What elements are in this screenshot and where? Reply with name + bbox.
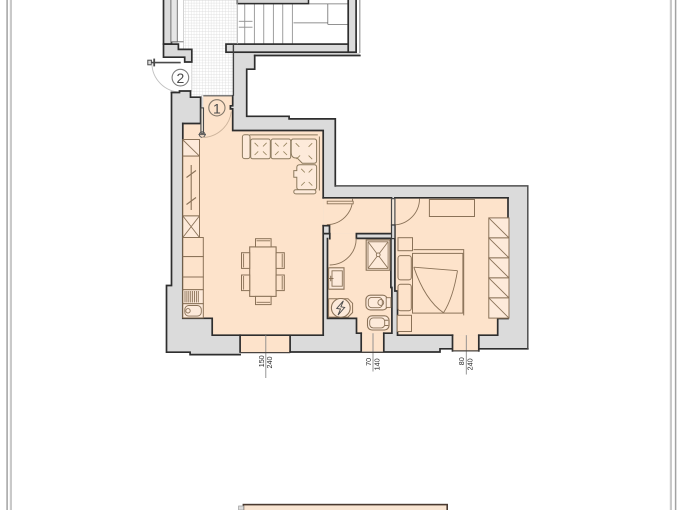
- svg-text:2: 2: [177, 70, 185, 86]
- svg-text:240: 240: [265, 357, 274, 369]
- svg-text:140: 140: [372, 358, 381, 370]
- svg-text:240: 240: [466, 358, 475, 370]
- svg-text:1: 1: [213, 100, 221, 116]
